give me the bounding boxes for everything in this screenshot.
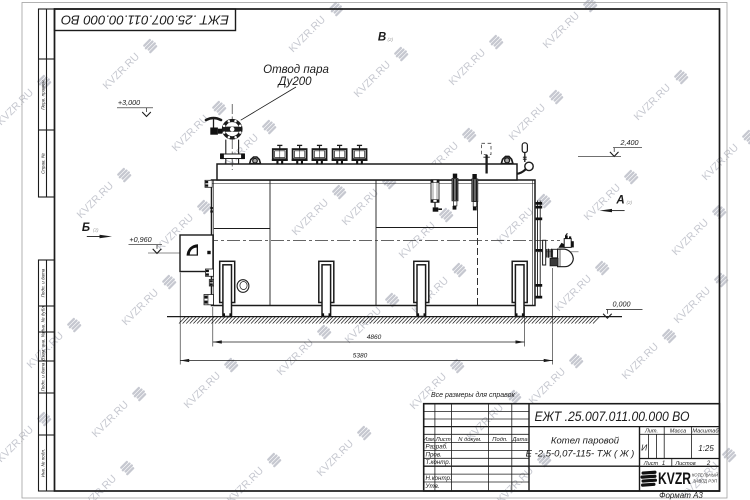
svg-text:Котел паровой: Котел паровой (551, 436, 620, 447)
svg-text:0,000: 0,000 (613, 300, 631, 309)
svg-text:Подп.: Подп. (492, 437, 507, 443)
svg-text:Подп. и дата: Подп. и дата (40, 268, 45, 297)
svg-text:Лист: Лист (643, 461, 659, 467)
svg-text:KVZR.RU: KVZR.RU (553, 273, 594, 314)
svg-text:KVZR.RU: KVZR.RU (120, 287, 161, 328)
svg-text:КОТЕЛЬНЫЙ: КОТЕЛЬНЫЙ (692, 473, 718, 478)
svg-text:Инв. № подл.: Инв. № подл. (40, 449, 45, 478)
svg-text:2,400: 2,400 (620, 138, 639, 147)
svg-text:KVZR.RU: KVZR.RU (315, 438, 356, 479)
svg-text:Лит.: Лит. (644, 428, 658, 434)
svg-text:Б: Б (82, 222, 90, 234)
svg-text:Подп. и дата: Подп. и дата (40, 362, 45, 391)
svg-text:KVZR.RU: KVZR.RU (78, 473, 119, 500)
svg-text:KVZR.RU: KVZR.RU (527, 366, 568, 407)
svg-text:Формат А3: Формат А3 (659, 491, 703, 500)
svg-text:Разраб.: Разраб. (426, 444, 448, 451)
svg-text:KVZR: KVZR (658, 469, 691, 488)
svg-text:И: И (641, 443, 648, 453)
svg-text:Изм.: Изм. (423, 437, 435, 443)
svg-text:KVZR.RU: KVZR.RU (670, 217, 711, 258)
svg-text:KVZR.RU: KVZR.RU (507, 102, 548, 143)
svg-text:Отвод пара: Отвод пара (263, 64, 329, 76)
svg-text:KVZR.RU: KVZR.RU (275, 337, 316, 378)
svg-text:ЕЖТ .25.007.011.00.000 ВО: ЕЖТ .25.007.011.00.000 ВО (61, 13, 229, 27)
svg-text:+3,000: +3,000 (118, 98, 140, 107)
svg-text:KVZR.RU: KVZR.RU (620, 341, 661, 382)
svg-text:Н.контр.: Н.контр. (426, 475, 452, 482)
svg-text:N докум.: N докум. (458, 437, 481, 443)
svg-text:ЕЖТ .25.007.011.00.000 ВО: ЕЖТ .25.007.011.00.000 ВО (535, 409, 690, 424)
svg-text:Ду200: Ду200 (276, 76, 312, 88)
svg-text:KVZR.RU: KVZR.RU (170, 113, 211, 154)
svg-text:Листов: Листов (674, 461, 695, 467)
svg-text:В: В (378, 32, 386, 44)
svg-text:(2): (2) (388, 37, 394, 42)
svg-text:2: 2 (706, 461, 711, 467)
svg-text:KVZR.RU: KVZR.RU (90, 399, 131, 440)
svg-text:KVZR.RU: KVZR.RU (632, 82, 673, 123)
svg-text:Утв.: Утв. (425, 483, 440, 490)
svg-text:KVZR.RU: KVZR.RU (0, 87, 36, 128)
svg-text:ЗАВОД РЭП: ЗАВОД РЭП (693, 479, 718, 484)
svg-text:Дата: Дата (511, 437, 528, 443)
svg-text:KVZR.RU: KVZR.RU (101, 51, 142, 92)
svg-text:KVZR.RU: KVZR.RU (225, 465, 266, 500)
svg-text:Справ. №: Справ. № (40, 153, 45, 174)
svg-text:KVZR.RU: KVZR.RU (672, 285, 713, 326)
svg-text:Лист: Лист (435, 437, 451, 443)
svg-text:Взам. инв. №: Взам. инв. № (40, 332, 45, 360)
svg-text:KVZR.RU: KVZR.RU (25, 330, 66, 371)
svg-text:KVZR.RU: KVZR.RU (0, 424, 36, 465)
svg-text:Перв. примен.: Перв. примен. (40, 79, 45, 110)
svg-text:(2): (2) (627, 200, 633, 205)
svg-text:KVZR.RU: KVZR.RU (182, 370, 223, 411)
svg-text:Масштаб: Масштаб (692, 428, 719, 434)
svg-text:Масса: Масса (670, 428, 687, 434)
svg-text:Все размеры для справок: Все размеры для справок (431, 391, 516, 399)
svg-text:KVZR.RU: KVZR.RU (447, 47, 488, 88)
svg-text:KVZR.RU: KVZR.RU (75, 180, 116, 221)
svg-text:Т.контр.: Т.контр. (426, 459, 451, 466)
svg-text:KVZR.RU: KVZR.RU (352, 59, 393, 100)
svg-text:(2): (2) (93, 228, 99, 233)
svg-text:KVZR.RU: KVZR.RU (541, 10, 582, 51)
svg-text:KVZR.RU: KVZR.RU (290, 197, 331, 238)
svg-text:KVZR.RU: KVZR.RU (700, 142, 741, 183)
svg-text:Инв. № дубл.: Инв. № дубл. (40, 305, 45, 333)
svg-text:А: А (615, 194, 624, 206)
svg-text:+0,960: +0,960 (129, 235, 151, 244)
svg-text:Е -2,5-0,07-115- ТЖ ( Ж ): Е -2,5-0,07-115- ТЖ ( Ж ) (526, 449, 635, 460)
svg-text:5380: 5380 (353, 352, 368, 359)
svg-text:1: 1 (662, 461, 665, 467)
svg-text:1:25: 1:25 (698, 444, 714, 453)
svg-text:KVZR.RU: KVZR.RU (287, 14, 328, 55)
svg-text:4860: 4860 (367, 334, 382, 341)
svg-text:Пров.: Пров. (426, 451, 442, 458)
